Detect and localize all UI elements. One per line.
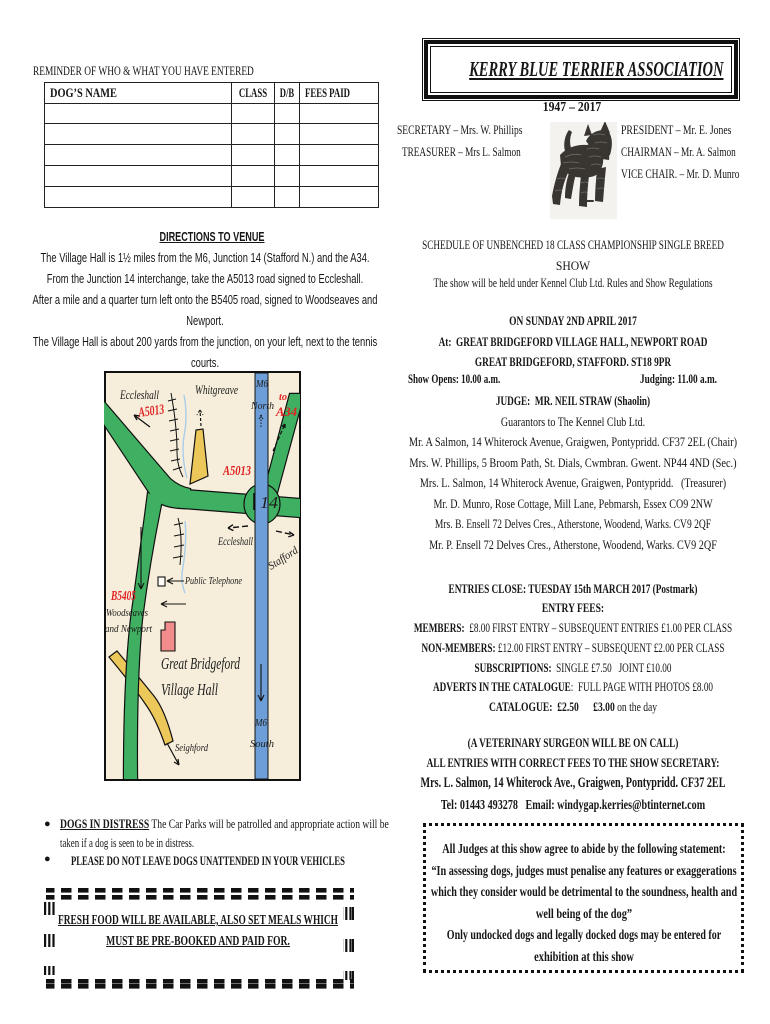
svg-text:Public Telephone: Public Telephone — [184, 575, 242, 587]
svg-text:Whitgreave: Whitgreave — [195, 382, 238, 397]
svg-text:Village Hall: Village Hall — [161, 680, 218, 699]
svg-text:14: 14 — [260, 493, 279, 512]
svg-text:North: North — [250, 400, 274, 412]
svg-text:A34: A34 — [275, 404, 297, 419]
svg-text:and Newport: and Newport — [105, 623, 153, 635]
svg-text:Eccleshall: Eccleshall — [119, 387, 159, 402]
svg-text:M6: M6 — [254, 717, 267, 729]
svg-text:Woodseaves: Woodseaves — [106, 607, 148, 619]
svg-text:A5013: A5013 — [222, 464, 251, 479]
svg-text:Great Bridgeford: Great Bridgeford — [161, 654, 240, 673]
svg-text:B5405: B5405 — [110, 589, 136, 604]
svg-text:Seighford: Seighford — [175, 742, 208, 754]
svg-text:Eccleshall: Eccleshall — [217, 534, 253, 548]
svg-text:to: to — [279, 391, 287, 403]
svg-text:M6: M6 — [255, 378, 268, 390]
svg-text:South: South — [250, 738, 274, 750]
